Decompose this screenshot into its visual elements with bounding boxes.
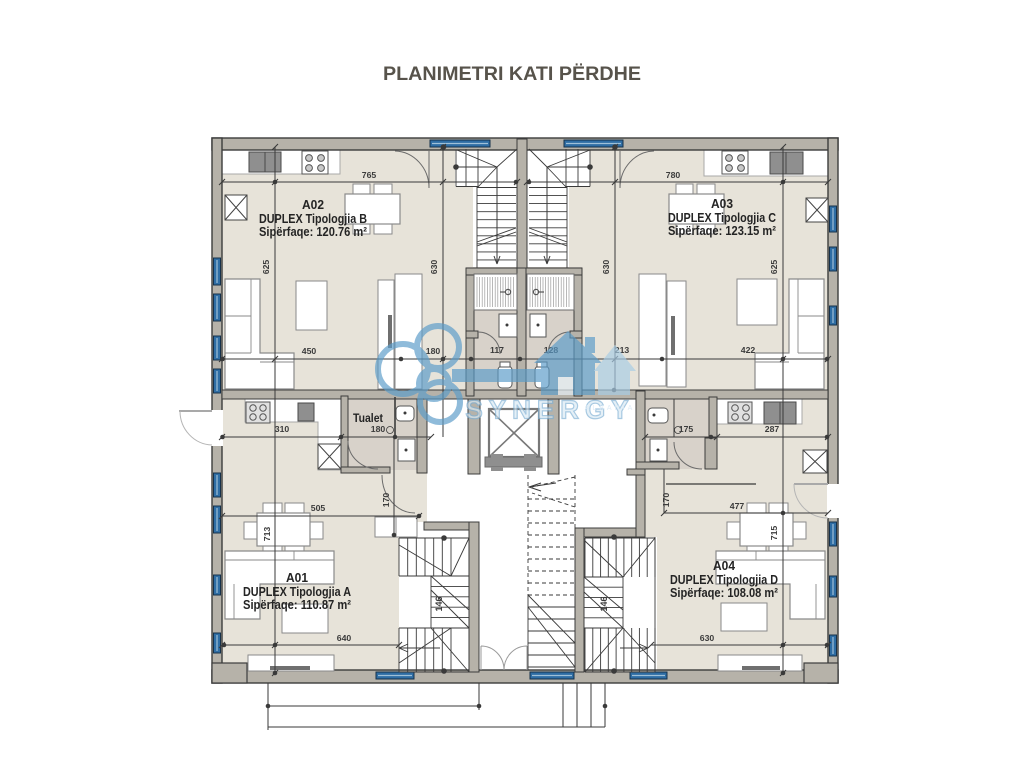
svg-text:713: 713	[262, 527, 272, 542]
svg-text:170: 170	[661, 493, 671, 508]
svg-text:422: 422	[741, 345, 756, 355]
svg-text:505: 505	[311, 503, 326, 513]
svg-text:Sipërfaqe: 123.15 m²: Sipërfaqe: 123.15 m²	[668, 223, 777, 238]
svg-text:170: 170	[381, 493, 391, 508]
svg-text:715: 715	[769, 526, 779, 541]
svg-text:630: 630	[700, 633, 715, 643]
svg-text:146: 146	[599, 596, 609, 611]
svg-text:Sipërfaqe: 108.08 m²: Sipërfaqe: 108.08 m²	[670, 585, 779, 600]
svg-text:A02: A02	[302, 197, 324, 212]
svg-text:Sipërfaqe: 120.76 m²: Sipërfaqe: 120.76 m²	[259, 224, 368, 239]
svg-text:287: 287	[765, 424, 780, 434]
svg-text:780: 780	[666, 170, 681, 180]
svg-text:765: 765	[362, 170, 377, 180]
svg-text:Sipërfaqe: 110.87 m²: Sipërfaqe: 110.87 m²	[243, 597, 352, 612]
svg-text:625: 625	[769, 260, 779, 275]
svg-text:A04: A04	[713, 558, 736, 573]
svg-text:A01: A01	[286, 570, 308, 585]
svg-text:PLANIMETRI KATI PËRDHE: PLANIMETRI KATI PËRDHE	[383, 64, 641, 85]
svg-text:310: 310	[275, 424, 290, 434]
svg-text:630: 630	[601, 260, 611, 275]
svg-text:630: 630	[429, 260, 439, 275]
svg-text:450: 450	[302, 346, 317, 356]
svg-text:117: 117	[490, 345, 504, 355]
svg-text:180: 180	[426, 346, 441, 356]
svg-text:625: 625	[261, 260, 271, 275]
svg-text:477: 477	[730, 501, 745, 511]
svg-text:ALBANIA: ALBANIA	[585, 405, 636, 412]
svg-text:Tualet: Tualet	[353, 413, 383, 425]
svg-text:A03: A03	[711, 196, 733, 211]
svg-text:180: 180	[371, 424, 386, 434]
svg-text:640: 640	[337, 633, 352, 643]
svg-text:146: 146	[434, 596, 444, 611]
